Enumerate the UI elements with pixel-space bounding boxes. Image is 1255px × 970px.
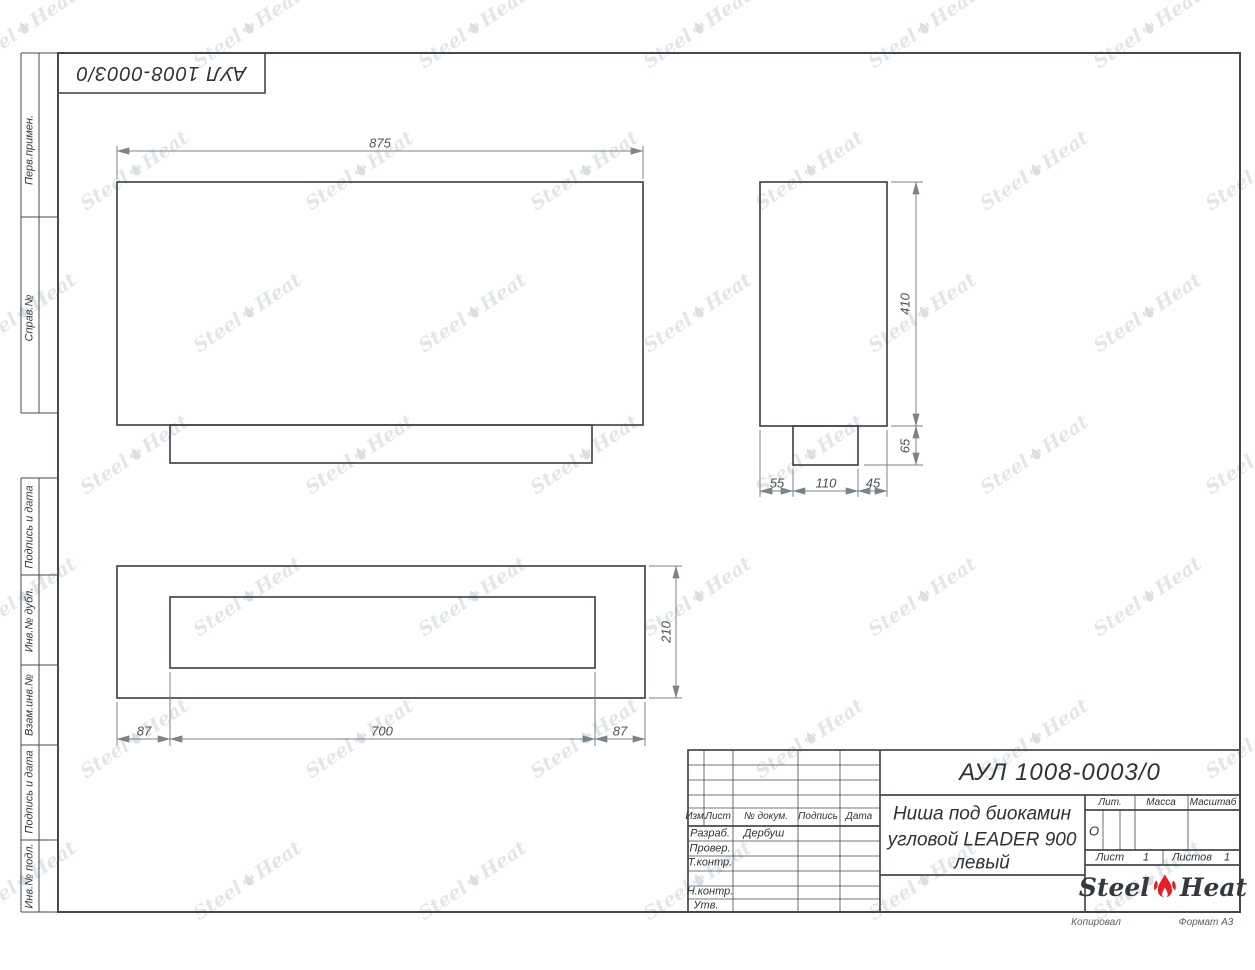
col-header-date: Дата [846,812,872,822]
col-header-sign: Подпись [798,812,838,822]
row-label-prover: Провер. [690,844,731,855]
inverted-doc-number: АУЛ 1008-0003/0 [76,63,247,83]
row-label-nkontr: Н.контр. [687,887,734,898]
col-header-doc: № докум. [744,812,788,822]
side-view-base [793,426,858,465]
footer-copied: Копировал [1071,918,1121,928]
dim-front-width: 875 [369,137,391,150]
front-view-body [117,182,643,425]
title-name-line3: левый [954,854,1010,873]
row-label-tkontr: Т.контр. [688,858,732,869]
logo-word-steel: Steel [1079,873,1150,902]
strip-label-vzam-inv: Взам.инв.№ [25,674,36,736]
title-name-line2: угловой LEADER 900 [888,831,1077,850]
list-label: Лист [1096,853,1124,864]
dim-side-height: 410 [899,293,912,315]
row-label-utv: Утв. [694,901,719,912]
top-view-opening [170,597,595,668]
front-view [117,182,643,463]
row-label-razrab: Разраб. [690,829,730,840]
lit-header: Лит. [1098,798,1121,808]
top-view [117,566,645,698]
drawing-sheet: SteelHeatSteelHeatSteelHeatSteelHeatStee… [0,0,1255,970]
title-name-line1: Ниша под биокамин [893,805,1071,824]
strip-label-sprav-no: Справ.№ [25,295,36,342]
dim-side-bottom-left: 55 [770,477,784,490]
flame-icon [1152,873,1178,903]
dimension-lines [117,146,923,746]
front-view-base [170,425,592,463]
col-header-izm: Изм. [685,812,706,822]
dim-side-bottom-right: 45 [866,477,880,490]
dim-top-opening: 700 [371,725,393,738]
masshtab-header: Масштаб [1190,798,1237,808]
dim-top-left-margin: 87 [137,725,151,738]
dim-side-bottom-center: 110 [816,477,837,490]
logo-word-heat: Heat [1180,873,1247,902]
dim-top-depth: 210 [660,621,673,643]
listov-value: 1 [1224,853,1230,864]
lit-value: О [1089,825,1099,838]
strip-label-podpis-data-1: Подпись и дата [25,485,36,568]
list-value: 1 [1143,853,1149,864]
strip-label-perv-primen: Перв.примен. [25,115,36,185]
strip-label-inv-dubl: Инв.№ дубл. [25,588,36,653]
listov-label: Листов [1172,853,1212,864]
dim-side-base-height: 65 [899,439,912,453]
side-view-body [760,182,887,426]
dim-top-right-margin: 87 [613,725,627,738]
drawing-linework [0,0,1255,970]
strip-label-inv-podl: Инв.№ подл. [25,843,36,908]
top-view-outline [117,566,645,698]
strip-label-podpis-data-2: Подпись и дата [25,750,36,833]
developer-name: Дербуш [744,829,785,840]
title-doc-number: АУЛ 1008-0003/0 [959,761,1161,785]
steel-heat-logo: Steel Heat [1079,873,1247,903]
side-view [760,182,887,465]
footer-format: Формат А3 [1179,918,1234,928]
massa-header: Масса [1146,798,1176,808]
col-header-list: Лист [705,812,731,822]
